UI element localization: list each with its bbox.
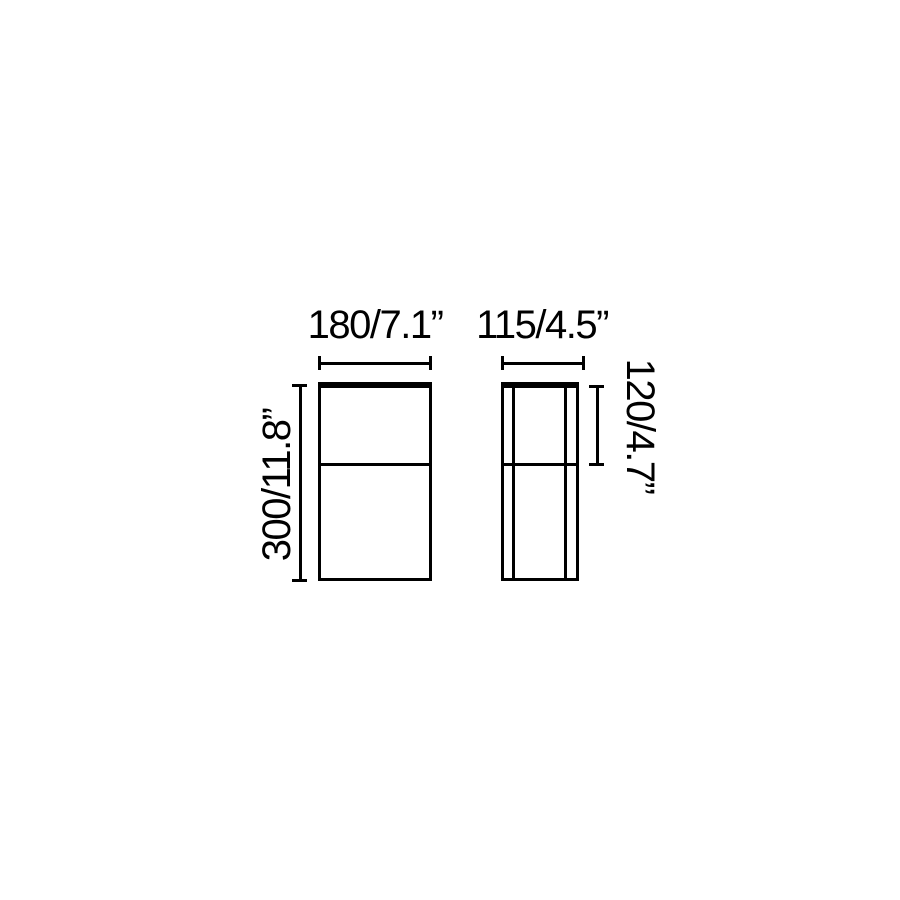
front-width-dimension-tick-right	[429, 356, 432, 370]
side-width-dimension-line	[501, 362, 585, 365]
side-upper-section-label: 120/4.7”	[617, 316, 663, 536]
front-view-outline	[318, 382, 432, 581]
side-width-dimension-tick-left	[501, 356, 504, 370]
side-view-divider-line	[501, 463, 579, 466]
dimension-diagram: 180/7.1” 115/4.5” 300/11.8” 120/4.7”	[0, 0, 900, 900]
side-upper-dimension-line	[596, 385, 599, 466]
front-height-label: 300/11.8”	[254, 375, 300, 595]
side-view-inner-right-line	[564, 388, 567, 579]
front-width-dimension-line	[318, 362, 432, 365]
front-view-divider-line	[318, 463, 432, 466]
front-width-dimension-tick-left	[318, 356, 321, 370]
side-view-inner-left-line	[512, 388, 515, 579]
side-upper-dimension-tick-bottom	[589, 463, 604, 466]
side-width-dimension-tick-right	[582, 356, 585, 370]
side-upper-dimension-tick-top	[589, 385, 604, 388]
